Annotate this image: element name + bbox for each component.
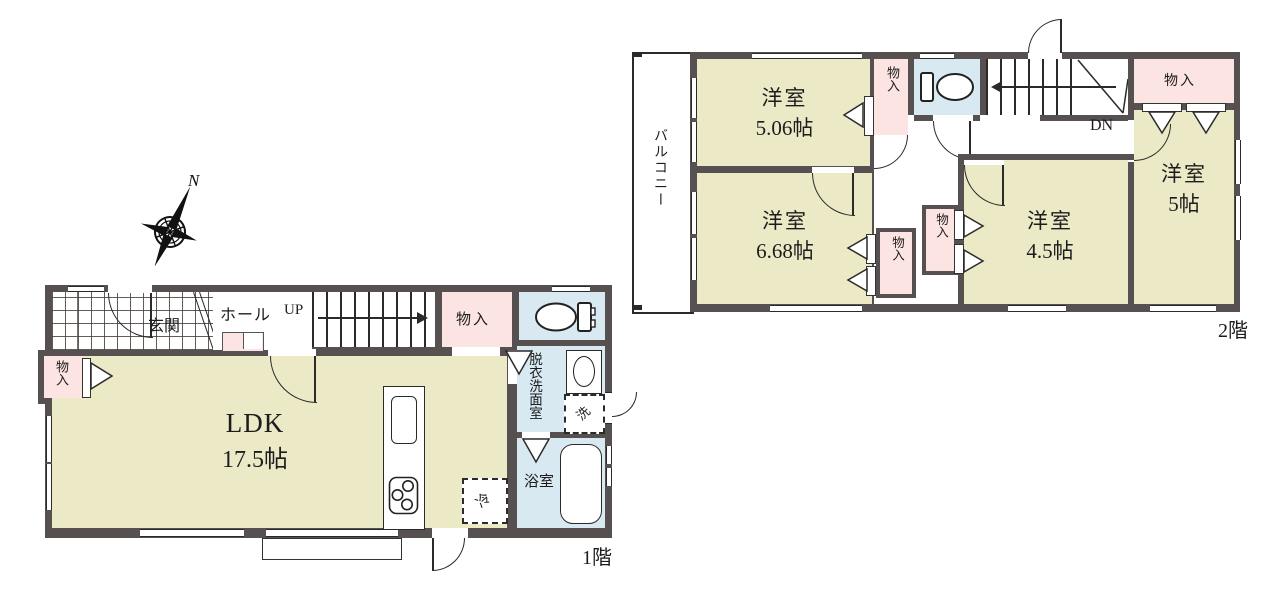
- room-506-size: 5.06帖: [712, 112, 857, 142]
- floor1-title: 1階: [560, 541, 612, 570]
- entrance-door-gap: [108, 285, 152, 293]
- window: [920, 53, 954, 59]
- dn-label: DN: [1090, 117, 1113, 135]
- room-45-door-leaf: [1002, 165, 1004, 205]
- closet-door-strip: [864, 96, 874, 136]
- room-668-size: 6.68帖: [710, 235, 860, 265]
- bathroom-label: 浴室: [524, 470, 554, 491]
- floor-plan-canvas: N N 玄関 ホール UP 物入 LDK 17.5帖: [0, 0, 1280, 589]
- backdoor-arc: [432, 538, 465, 571]
- window: [552, 286, 590, 292]
- window: [752, 53, 862, 59]
- compass-rose-icon: N: [136, 170, 216, 266]
- room-668-label: 洋室 6.68帖: [710, 205, 860, 265]
- hall-label: ホール: [220, 301, 271, 325]
- window: [691, 78, 697, 118]
- closet-45-label: 物入: [932, 213, 951, 238]
- compass-north-label: N: [187, 171, 201, 190]
- window: [691, 192, 697, 234]
- window: [46, 464, 52, 510]
- closet-1f-left-label: 物入: [52, 360, 71, 386]
- room-45-name: 洋室: [980, 205, 1120, 235]
- window: [1150, 305, 1216, 312]
- folding-door-triangle: [522, 438, 550, 464]
- window: [770, 305, 862, 312]
- closet-2f-right-label: 物入: [1164, 70, 1196, 90]
- ldk-name: LDK: [150, 408, 360, 439]
- ldk-label: LDK 17.5帖: [150, 408, 360, 474]
- room-668-door-leaf: [852, 173, 854, 215]
- window: [46, 416, 52, 462]
- ldk-door-gap: [268, 349, 316, 356]
- closet-668-label: 物入: [888, 236, 907, 261]
- room-506-name: 洋室: [712, 82, 857, 112]
- terrace-step: [262, 538, 402, 560]
- door-leaf: [1060, 19, 1062, 53]
- balcony-rail-cap: [632, 305, 642, 310]
- ldk-size: 17.5帖: [150, 439, 360, 474]
- room-45-label: 洋室 4.5帖: [980, 205, 1120, 265]
- balcony-rail-cap: [632, 52, 642, 57]
- closet-1f-top-label: 物入: [456, 308, 490, 329]
- window: [691, 238, 697, 280]
- ldk-door-leaf: [314, 356, 316, 402]
- window: [1235, 196, 1241, 240]
- door-gap: [1028, 52, 1062, 59]
- folding-door-triangle: [963, 249, 985, 273]
- stove-icon: [388, 476, 420, 516]
- exterior-door-arc: [612, 392, 637, 417]
- closet-door-strip: [452, 347, 500, 356]
- room-506-label: 洋室 5.06帖: [712, 82, 857, 142]
- window: [1235, 140, 1241, 184]
- stairs-up-arrow: [318, 317, 418, 319]
- backdoor-leaf: [432, 538, 434, 570]
- folding-door-triangle: [963, 214, 985, 238]
- folding-door-triangle: [505, 350, 533, 376]
- wall: [77, 292, 78, 350]
- shoe-cabinet-door: [243, 333, 262, 349]
- window: [1008, 305, 1066, 312]
- up-label: UP: [284, 302, 303, 319]
- toilet-icon: [526, 296, 600, 338]
- window: [606, 468, 612, 486]
- floor2-title: 2階: [1196, 314, 1248, 343]
- stairs-down-arrowhead: [991, 81, 1002, 93]
- window: [68, 286, 104, 292]
- kitchen-sink: [391, 396, 417, 444]
- room-5-label: 洋室 5帖: [1134, 158, 1234, 218]
- wall: [1040, 115, 1128, 121]
- folding-door-triangle: [846, 268, 868, 292]
- backdoor-gap: [432, 528, 468, 538]
- sink-bowl-icon: [573, 356, 595, 387]
- room-45-size: 4.5帖: [980, 235, 1120, 265]
- balcony-label: バルコニー: [649, 128, 669, 208]
- window: [140, 529, 244, 537]
- folding-door-triangle: [1192, 111, 1220, 135]
- door-arc: [1028, 19, 1062, 53]
- folding-door-triangle: [842, 102, 864, 128]
- room-5-name: 洋室: [1134, 158, 1234, 188]
- folding-door-triangle: [90, 362, 114, 390]
- toilet-icon: [918, 66, 978, 108]
- genkan-label: 玄関: [148, 312, 180, 336]
- bathtub: [560, 444, 602, 524]
- closet-2f-mid-label: 物入: [883, 66, 902, 92]
- window: [266, 529, 398, 537]
- window: [691, 122, 697, 162]
- compass: N N: [136, 170, 216, 266]
- room-5-size: 5帖: [1134, 188, 1234, 218]
- folding-door-triangle: [846, 236, 868, 260]
- door-gap: [605, 392, 612, 424]
- stairs-down-arrow: [1002, 86, 1116, 88]
- window: [606, 446, 612, 464]
- stairs-up-arrowhead: [417, 312, 428, 324]
